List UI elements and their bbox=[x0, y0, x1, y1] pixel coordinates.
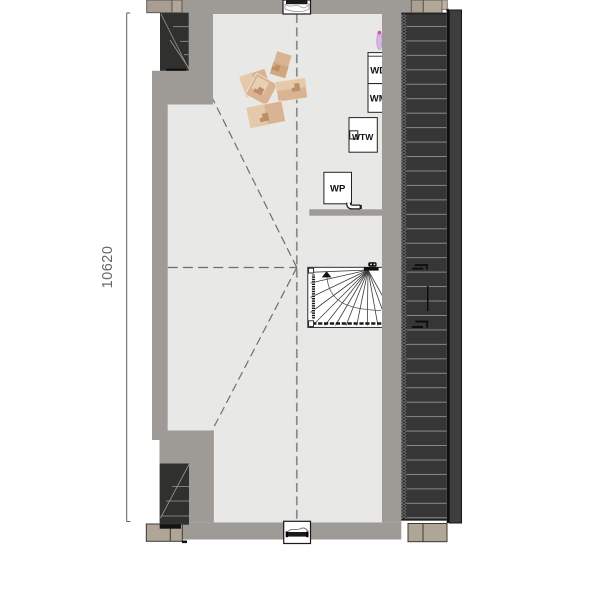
svg-text:10620: 10620 bbox=[100, 246, 116, 289]
svg-text:WP: WP bbox=[330, 184, 346, 195]
svg-text:WTW: WTW bbox=[352, 132, 374, 142]
